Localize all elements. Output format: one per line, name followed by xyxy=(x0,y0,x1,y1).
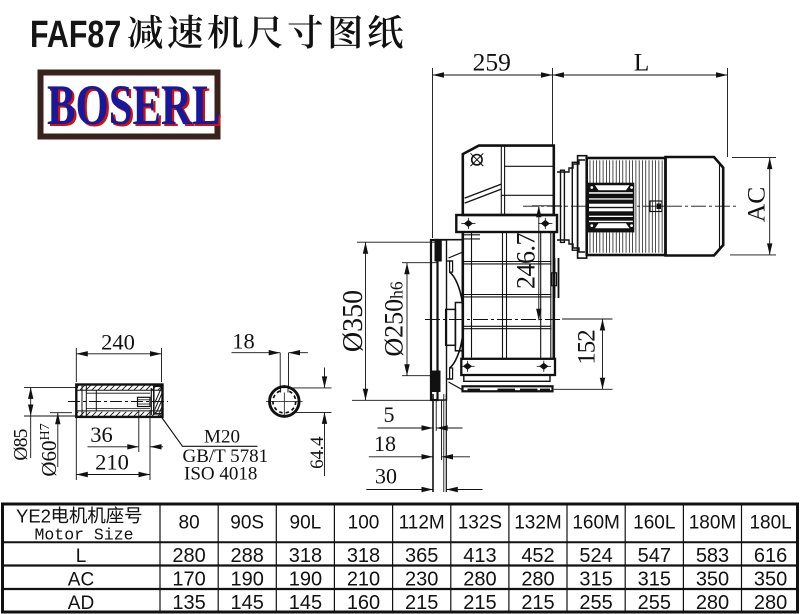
svg-text:M20: M20 xyxy=(204,427,240,448)
svg-text:350: 350 xyxy=(696,568,729,590)
svg-text:160L: 160L xyxy=(633,513,675,534)
svg-text:BOSERL: BOSERL xyxy=(47,73,220,136)
svg-text:Ø85: Ø85 xyxy=(11,429,32,460)
svg-text:318: 318 xyxy=(347,545,380,567)
svg-text:280: 280 xyxy=(754,592,787,614)
svg-text:Ø250h6: Ø250h6 xyxy=(380,281,409,357)
svg-text:246.7: 246.7 xyxy=(512,233,541,290)
svg-text:YE2: YE2 xyxy=(16,506,51,527)
svg-text:AC: AC xyxy=(742,187,771,222)
svg-text:90L: 90L xyxy=(290,513,322,534)
svg-text:AD: AD xyxy=(68,593,94,614)
svg-text:255: 255 xyxy=(638,592,671,614)
svg-text:230: 230 xyxy=(405,568,438,590)
svg-text:280: 280 xyxy=(696,592,729,614)
svg-text:90S: 90S xyxy=(230,513,264,534)
svg-text:160: 160 xyxy=(347,592,380,614)
svg-text:135: 135 xyxy=(172,592,205,614)
svg-text:Ø350: Ø350 xyxy=(338,290,369,352)
svg-text:152: 152 xyxy=(574,330,601,365)
svg-text:80: 80 xyxy=(179,513,200,534)
svg-text:AC: AC xyxy=(68,569,94,590)
svg-text:280: 280 xyxy=(172,545,205,567)
svg-text:365: 365 xyxy=(405,545,438,567)
svg-text:524: 524 xyxy=(579,545,612,567)
svg-text:18: 18 xyxy=(232,329,255,354)
svg-text:36: 36 xyxy=(90,422,113,447)
svg-text:215: 215 xyxy=(463,592,496,614)
svg-text:190: 190 xyxy=(289,568,322,590)
svg-text:318: 318 xyxy=(289,545,322,567)
svg-text:315: 315 xyxy=(579,568,612,590)
svg-text:FAF87: FAF87 xyxy=(30,14,121,56)
svg-text:180M: 180M xyxy=(689,513,737,534)
svg-text:132S: 132S xyxy=(458,513,502,534)
svg-text:30: 30 xyxy=(375,464,397,489)
svg-text:452: 452 xyxy=(521,545,554,567)
svg-text:255: 255 xyxy=(579,592,612,614)
svg-text:215: 215 xyxy=(521,592,554,614)
svg-text:350: 350 xyxy=(754,568,787,590)
svg-text:L: L xyxy=(634,47,650,76)
svg-text:18: 18 xyxy=(374,431,396,456)
svg-text:170: 170 xyxy=(172,568,205,590)
svg-text:215: 215 xyxy=(405,592,438,614)
svg-text:Motor Size: Motor Size xyxy=(34,526,133,545)
svg-text:160M: 160M xyxy=(572,513,620,534)
svg-text:547: 547 xyxy=(638,545,671,567)
svg-text:616: 616 xyxy=(754,545,787,567)
svg-text:180L: 180L xyxy=(749,513,791,534)
svg-text:280: 280 xyxy=(463,568,496,590)
svg-text:132M: 132M xyxy=(514,513,562,534)
svg-text:112M: 112M xyxy=(399,513,445,534)
svg-text:64.4: 64.4 xyxy=(307,436,328,469)
svg-text:100: 100 xyxy=(348,513,380,534)
svg-text:280: 280 xyxy=(521,568,554,590)
svg-text:5: 5 xyxy=(384,402,395,427)
svg-text:ISO 4018: ISO 4018 xyxy=(184,464,257,485)
svg-text:210: 210 xyxy=(347,568,380,590)
svg-text:583: 583 xyxy=(696,545,729,567)
svg-text:259: 259 xyxy=(473,47,511,76)
svg-text:190: 190 xyxy=(231,568,264,590)
svg-text:413: 413 xyxy=(463,545,496,567)
svg-text:288: 288 xyxy=(231,545,264,567)
svg-text:210: 210 xyxy=(95,450,129,475)
svg-text:145: 145 xyxy=(231,592,264,614)
svg-text:315: 315 xyxy=(638,568,671,590)
svg-text:L: L xyxy=(76,546,87,567)
svg-text:145: 145 xyxy=(289,592,322,614)
svg-text:240: 240 xyxy=(101,330,135,355)
